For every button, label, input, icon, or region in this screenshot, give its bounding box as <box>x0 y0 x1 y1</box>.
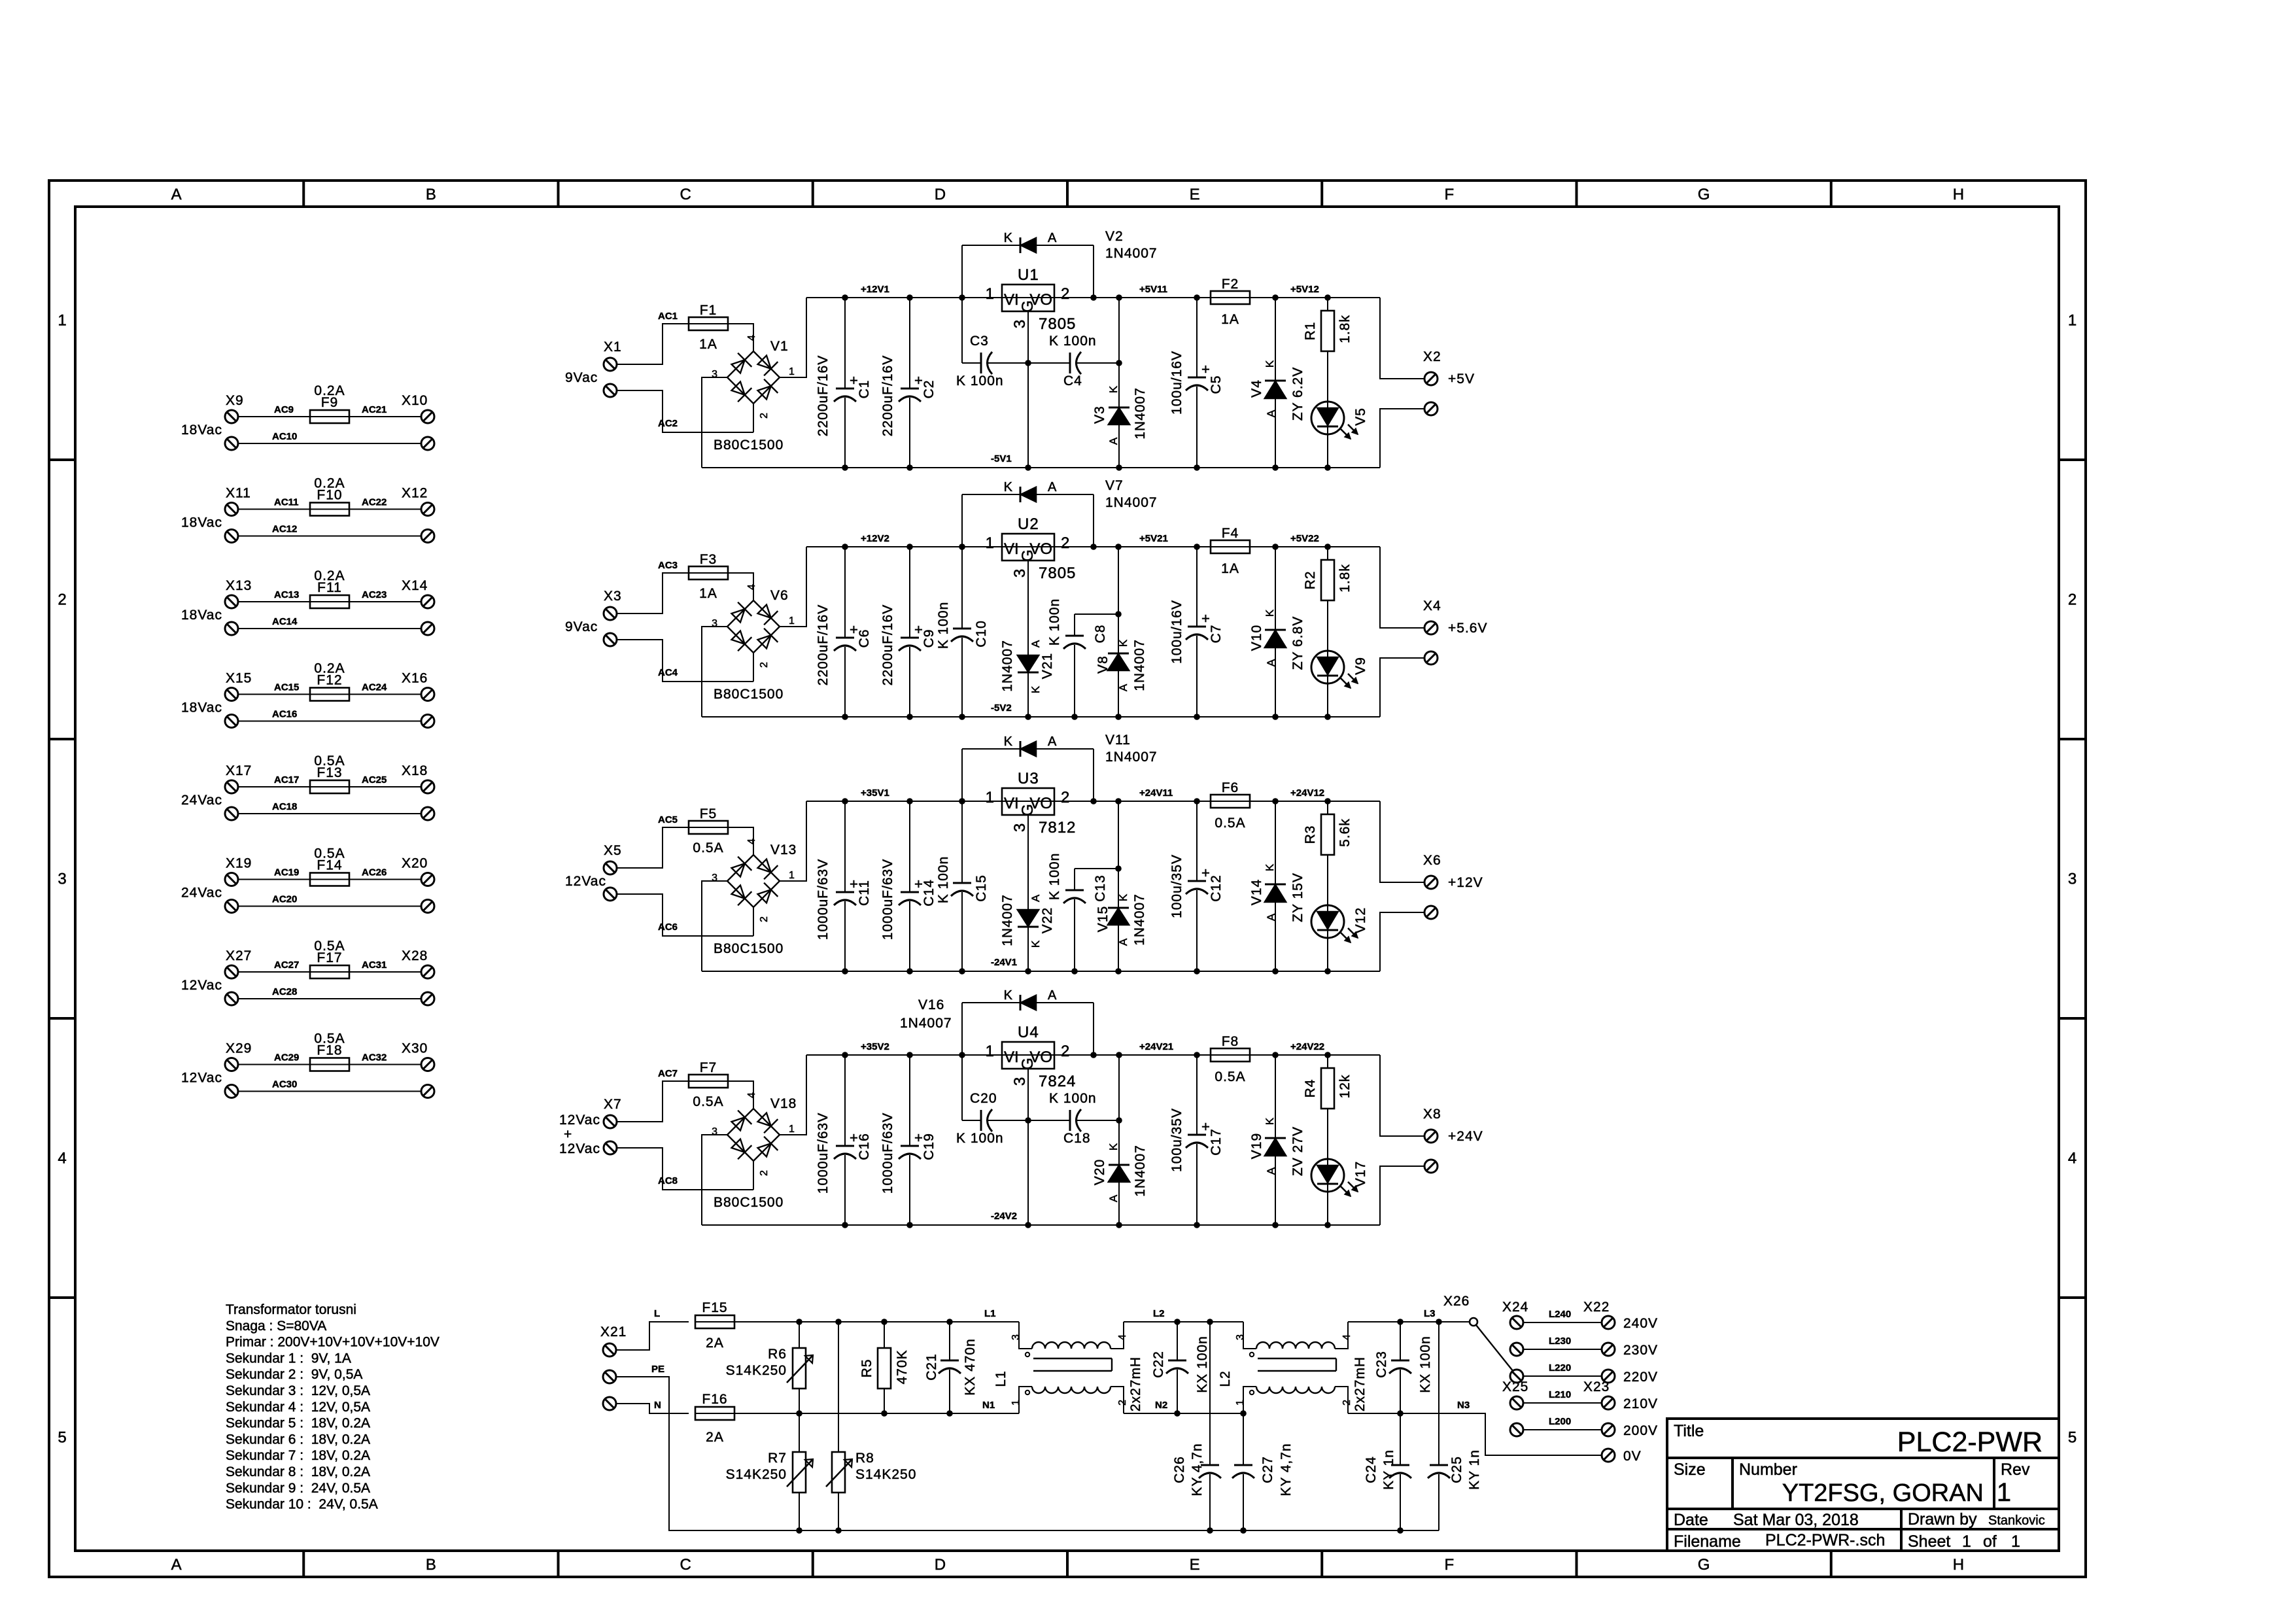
svg-text:+5.6V: +5.6V <box>1448 621 1487 636</box>
svg-text:1: 1 <box>1235 1399 1246 1406</box>
svg-text:U1: U1 <box>1018 266 1039 284</box>
svg-text:1: 1 <box>1997 1478 2011 1507</box>
svg-text:1N4007: 1N4007 <box>1133 1145 1148 1197</box>
svg-text:200V: 200V <box>1623 1423 1658 1438</box>
svg-text:1N4007: 1N4007 <box>1133 387 1148 440</box>
svg-text:AC18: AC18 <box>272 801 297 812</box>
svg-text:K: K <box>1004 734 1013 749</box>
svg-text:1000uF/63V: 1000uF/63V <box>816 859 831 940</box>
svg-text:1N4007: 1N4007 <box>900 1016 952 1031</box>
svg-text:1.8k: 1.8k <box>1337 315 1353 343</box>
svg-text:AC9: AC9 <box>274 404 294 415</box>
svg-text:G: G <box>1019 803 1037 816</box>
svg-text:24Vac: 24Vac <box>181 793 222 808</box>
svg-text:100u/35V: 100u/35V <box>1169 854 1184 918</box>
svg-text:+5V11: +5V11 <box>1139 284 1167 295</box>
svg-text:1: 1 <box>789 615 795 627</box>
svg-text:Rev: Rev <box>2001 1460 2030 1479</box>
svg-text:N1: N1 <box>982 1400 995 1411</box>
svg-text:3: 3 <box>1011 319 1029 328</box>
svg-text:V13: V13 <box>770 842 797 857</box>
svg-text:V8: V8 <box>1095 655 1111 674</box>
svg-text:3: 3 <box>712 1126 717 1137</box>
svg-text:B80C1500: B80C1500 <box>714 941 784 956</box>
svg-text:R6: R6 <box>768 1347 787 1362</box>
svg-text:A: A <box>1117 683 1129 691</box>
svg-text:L230: L230 <box>1549 1336 1571 1347</box>
svg-text:210V: 210V <box>1623 1396 1658 1411</box>
svg-text:L1: L1 <box>984 1308 996 1319</box>
svg-text:1: 1 <box>986 789 994 806</box>
svg-text:+24V11: +24V11 <box>1139 787 1173 799</box>
svg-text:V18: V18 <box>770 1096 797 1111</box>
svg-text:3: 3 <box>1010 1334 1022 1340</box>
svg-text:1000uF/63V: 1000uF/63V <box>880 859 895 940</box>
svg-text:V4: V4 <box>1249 379 1264 398</box>
svg-text:3: 3 <box>1011 823 1029 832</box>
svg-text:C23: C23 <box>1374 1351 1389 1378</box>
svg-text:F15: F15 <box>702 1300 727 1315</box>
svg-text:2: 2 <box>1117 1399 1128 1406</box>
svg-text:Sekundar 10 : 24V, 0.5A: Sekundar 10 : 24V, 0.5A <box>226 1497 378 1512</box>
svg-text:C17: C17 <box>1209 1128 1224 1156</box>
svg-text:AC22: AC22 <box>362 497 387 508</box>
svg-text:3: 3 <box>58 871 66 888</box>
svg-text:C4: C4 <box>1063 373 1082 389</box>
svg-text:F8: F8 <box>1222 1034 1239 1049</box>
svg-text:220V: 220V <box>1623 1370 1658 1385</box>
svg-text:F17: F17 <box>317 950 342 965</box>
svg-text:470K: 470K <box>895 1349 910 1384</box>
svg-text:2: 2 <box>759 1169 770 1176</box>
svg-text:VI: VI <box>1004 1048 1019 1066</box>
svg-text:N2: N2 <box>1155 1400 1167 1411</box>
svg-text:C26: C26 <box>1172 1456 1187 1483</box>
svg-text:V9: V9 <box>1353 657 1368 675</box>
svg-text:X18: X18 <box>402 763 428 778</box>
svg-text:X26: X26 <box>1443 1294 1470 1309</box>
svg-text:Number: Number <box>1739 1460 1797 1479</box>
svg-text:C20: C20 <box>970 1091 997 1106</box>
svg-text:X21: X21 <box>600 1324 627 1339</box>
svg-text:X29: X29 <box>226 1041 252 1056</box>
svg-text:V16: V16 <box>918 997 944 1012</box>
svg-text:C18: C18 <box>1063 1131 1091 1146</box>
svg-text:F16: F16 <box>702 1392 727 1407</box>
svg-text:18Vac: 18Vac <box>181 515 222 530</box>
svg-text:AC6: AC6 <box>658 922 678 933</box>
svg-text:X17: X17 <box>226 763 252 778</box>
svg-text:C24: C24 <box>1364 1456 1379 1483</box>
svg-text:C6: C6 <box>857 629 872 648</box>
svg-text:A: A <box>1107 437 1120 445</box>
svg-text:U2: U2 <box>1018 515 1039 533</box>
svg-text:R5: R5 <box>859 1359 874 1378</box>
svg-text:2: 2 <box>759 916 770 922</box>
svg-text:R4: R4 <box>1303 1079 1318 1098</box>
svg-text:R7: R7 <box>768 1451 787 1466</box>
svg-text:G: G <box>1019 1057 1037 1070</box>
svg-text:F: F <box>1445 1556 1455 1574</box>
svg-text:1A: 1A <box>1221 312 1239 327</box>
svg-text:C11: C11 <box>857 880 872 906</box>
svg-text:F5: F5 <box>700 806 717 821</box>
svg-text:A: A <box>1265 913 1277 921</box>
svg-text:+24V22: +24V22 <box>1290 1041 1324 1052</box>
svg-text:240V: 240V <box>1623 1316 1658 1331</box>
svg-text:K 100n: K 100n <box>1047 598 1062 646</box>
svg-text:-24V2: -24V2 <box>991 1211 1017 1222</box>
svg-text:PE: PE <box>651 1364 664 1375</box>
svg-text:X19: X19 <box>226 856 252 871</box>
svg-text:C16: C16 <box>857 1133 872 1160</box>
svg-text:L240: L240 <box>1549 1309 1571 1320</box>
svg-text:V15: V15 <box>1095 906 1111 932</box>
svg-text:100u/16V: 100u/16V <box>1169 351 1184 415</box>
svg-text:A: A <box>171 186 182 203</box>
svg-text:A: A <box>1265 659 1277 666</box>
svg-text:+: + <box>1201 610 1210 627</box>
svg-text:V22: V22 <box>1040 907 1055 933</box>
svg-text:G: G <box>1019 549 1037 562</box>
svg-text:F9: F9 <box>321 395 339 410</box>
svg-text:230V: 230V <box>1623 1343 1658 1358</box>
svg-text:A: A <box>1048 734 1057 749</box>
svg-text:-5V2: -5V2 <box>991 702 1012 714</box>
svg-text:12Vac: 12Vac <box>565 874 606 889</box>
svg-text:AC7: AC7 <box>658 1068 678 1079</box>
svg-text:B80C1500: B80C1500 <box>714 687 784 702</box>
svg-text:1: 1 <box>789 1124 795 1135</box>
svg-text:12Vac: 12Vac <box>181 978 222 993</box>
svg-text:1: 1 <box>789 870 795 881</box>
svg-text:Date: Date <box>1674 1511 1708 1529</box>
svg-text:V20: V20 <box>1092 1159 1107 1185</box>
svg-text:X20: X20 <box>402 856 428 871</box>
svg-text:5: 5 <box>58 1429 66 1447</box>
svg-text:V11: V11 <box>1105 733 1131 748</box>
svg-text:+5V12: +5V12 <box>1290 284 1319 295</box>
svg-text:1N4007: 1N4007 <box>1105 750 1158 765</box>
svg-text:K 100n: K 100n <box>1047 853 1062 901</box>
svg-text:7824: 7824 <box>1039 1073 1076 1090</box>
svg-text:A: A <box>171 1556 182 1574</box>
svg-text:K 100n: K 100n <box>1049 334 1097 349</box>
svg-text:1.8k: 1.8k <box>1337 564 1353 593</box>
svg-text:Sekundar 2 : 9V, 0,5A: Sekundar 2 : 9V, 0,5A <box>226 1367 362 1382</box>
svg-text:X7: X7 <box>604 1097 622 1112</box>
svg-text:3: 3 <box>1235 1334 1246 1340</box>
svg-text:C22: C22 <box>1151 1351 1166 1378</box>
svg-text:K 100n: K 100n <box>956 1131 1004 1146</box>
svg-text:3: 3 <box>712 618 717 629</box>
svg-text:AC16: AC16 <box>272 709 297 720</box>
svg-text:F14: F14 <box>317 858 342 873</box>
svg-text:4: 4 <box>1341 1334 1353 1340</box>
svg-text:4: 4 <box>2068 1150 2077 1167</box>
svg-text:3: 3 <box>712 369 717 380</box>
svg-text:AC8: AC8 <box>658 1175 678 1186</box>
svg-text:K: K <box>1107 1143 1120 1150</box>
svg-text:C19: C19 <box>922 1133 937 1160</box>
svg-text:C15: C15 <box>974 874 989 902</box>
svg-text:0.5A: 0.5A <box>693 840 723 855</box>
svg-text:S14K250: S14K250 <box>855 1467 916 1482</box>
svg-text:S14K250: S14K250 <box>726 1467 787 1482</box>
svg-text:YT2FSG, GORAN: YT2FSG, GORAN <box>1782 1479 1984 1507</box>
svg-text:X30: X30 <box>402 1041 428 1056</box>
svg-text:+24V12: +24V12 <box>1290 787 1324 799</box>
svg-text:K: K <box>1264 863 1276 871</box>
svg-text:18Vac: 18Vac <box>181 700 222 716</box>
svg-text:C: C <box>680 186 691 203</box>
svg-text:Sat Mar 03, 2018: Sat Mar 03, 2018 <box>1733 1511 1859 1529</box>
svg-text:+5V: +5V <box>1448 371 1475 387</box>
svg-text:X3: X3 <box>604 589 622 604</box>
svg-text:C12: C12 <box>1209 874 1224 902</box>
svg-text:KY 4,7n: KY 4,7n <box>1190 1443 1205 1496</box>
svg-text:V19: V19 <box>1249 1133 1264 1159</box>
svg-text:A: A <box>1029 894 1042 902</box>
svg-text:2A: 2A <box>706 1336 724 1351</box>
svg-text:+5V21: +5V21 <box>1139 533 1168 544</box>
svg-text:1: 1 <box>789 366 795 377</box>
svg-text:Filename: Filename <box>1674 1532 1741 1551</box>
svg-text:+24V: +24V <box>1448 1129 1483 1144</box>
svg-text:V21: V21 <box>1040 653 1055 679</box>
svg-text:AC11: AC11 <box>274 497 299 508</box>
svg-text:Sekundar 6 : 18V, 0.2A: Sekundar 6 : 18V, 0.2A <box>226 1432 370 1447</box>
svg-text:B: B <box>426 186 436 203</box>
svg-text:12Vac: 12Vac <box>181 1071 222 1086</box>
svg-text:Sekundar 4 : 12V, 0,5A: Sekundar 4 : 12V, 0,5A <box>226 1400 370 1415</box>
svg-text:3: 3 <box>1011 1077 1029 1086</box>
svg-text:V17: V17 <box>1353 1161 1368 1187</box>
svg-text:V14: V14 <box>1249 879 1264 905</box>
svg-text:1N4007: 1N4007 <box>1105 495 1158 510</box>
svg-text:2: 2 <box>2068 591 2077 609</box>
svg-text:1: 1 <box>2011 1532 2020 1551</box>
svg-text:C21: C21 <box>924 1353 939 1381</box>
svg-text:1: 1 <box>986 285 994 303</box>
svg-text:F13: F13 <box>317 765 342 780</box>
svg-text:AC4: AC4 <box>658 667 678 678</box>
svg-text:AC31: AC31 <box>362 959 387 971</box>
svg-text:S14K250: S14K250 <box>726 1363 787 1378</box>
svg-text:C7: C7 <box>1209 625 1224 644</box>
svg-text:C3: C3 <box>970 334 989 349</box>
svg-text:L200: L200 <box>1549 1416 1571 1427</box>
svg-text:K 100n: K 100n <box>936 602 951 649</box>
svg-text:7812: 7812 <box>1039 819 1076 837</box>
svg-text:B: B <box>426 1556 436 1574</box>
svg-text:L220: L220 <box>1549 1362 1571 1373</box>
svg-text:A: A <box>1265 409 1277 417</box>
svg-text:7805: 7805 <box>1039 315 1076 333</box>
svg-text:of: of <box>1983 1532 1997 1551</box>
svg-text:PLC2-PWR: PLC2-PWR <box>1897 1426 2043 1458</box>
svg-text:2x27mH: 2x27mH <box>1128 1356 1143 1411</box>
svg-text:1000uF/63V: 1000uF/63V <box>816 1113 831 1194</box>
svg-text:V3: V3 <box>1092 406 1107 424</box>
svg-text:ZY 15V: ZY 15V <box>1290 872 1305 922</box>
svg-text:Sekundar 1 : 9V, 1A: Sekundar 1 : 9V, 1A <box>226 1351 351 1366</box>
svg-text:12k: 12k <box>1337 1075 1353 1099</box>
svg-text:1: 1 <box>986 1043 994 1060</box>
svg-text:KY 1n: KY 1n <box>1467 1449 1482 1490</box>
svg-text:+: + <box>1201 361 1210 377</box>
svg-text:C8: C8 <box>1093 625 1108 644</box>
svg-text:G: G <box>1698 1556 1710 1574</box>
svg-text:2: 2 <box>1341 1399 1353 1406</box>
svg-text:U4: U4 <box>1018 1024 1039 1041</box>
svg-text:Sheet: Sheet <box>1908 1532 1950 1551</box>
svg-text:K: K <box>1029 940 1042 948</box>
svg-text:1A: 1A <box>699 337 717 352</box>
svg-text:X28: X28 <box>402 948 428 963</box>
svg-text:F7: F7 <box>700 1060 717 1075</box>
svg-text:24Vac: 24Vac <box>181 886 222 901</box>
svg-text:Drawn by: Drawn by <box>1908 1510 1977 1529</box>
svg-text:AC5: AC5 <box>658 814 678 825</box>
svg-text:1: 1 <box>1962 1532 1971 1551</box>
svg-text:2: 2 <box>58 591 66 609</box>
svg-text:1: 1 <box>2068 312 2077 330</box>
svg-text:AC29: AC29 <box>274 1052 299 1063</box>
svg-text:5: 5 <box>2068 1429 2077 1447</box>
svg-text:KX 100n: KX 100n <box>1418 1336 1433 1393</box>
svg-text:X1: X1 <box>604 339 622 354</box>
svg-text:X10: X10 <box>402 393 428 408</box>
svg-text:AC32: AC32 <box>362 1052 387 1063</box>
svg-text:K: K <box>1117 639 1129 647</box>
svg-text:C1: C1 <box>857 380 872 399</box>
svg-text:AC23: AC23 <box>362 589 387 600</box>
svg-text:N3: N3 <box>1457 1400 1470 1411</box>
svg-text:K: K <box>1264 1117 1276 1125</box>
svg-text:V5: V5 <box>1353 407 1368 426</box>
svg-text:X25: X25 <box>1502 1379 1528 1394</box>
svg-text:4: 4 <box>58 1150 66 1167</box>
svg-text:C5: C5 <box>1209 375 1224 394</box>
svg-text:2200uF/16V: 2200uF/16V <box>816 355 831 436</box>
svg-text:ZY 6.8V: ZY 6.8V <box>1290 616 1305 670</box>
svg-text:1000uF/63V: 1000uF/63V <box>880 1113 895 1194</box>
svg-text:C: C <box>680 1556 691 1574</box>
svg-text:5.6k: 5.6k <box>1337 818 1353 847</box>
svg-text:X14: X14 <box>402 578 428 593</box>
svg-text:100u/16V: 100u/16V <box>1169 600 1184 664</box>
svg-text:Snaga : S=80VA: Snaga : S=80VA <box>226 1319 326 1334</box>
svg-text:2x27mH: 2x27mH <box>1353 1356 1368 1411</box>
svg-text:4: 4 <box>746 583 757 590</box>
svg-text:-5V1: -5V1 <box>991 453 1012 464</box>
svg-text:C14: C14 <box>922 879 937 907</box>
svg-text:R1: R1 <box>1303 322 1318 341</box>
svg-text:1N4007: 1N4007 <box>1105 246 1158 261</box>
svg-text:9Vac: 9Vac <box>565 619 598 634</box>
svg-text:Primar : 200V+10V+10V+10V+10V: Primar : 200V+10V+10V+10V+10V <box>226 1335 440 1350</box>
svg-text:L1: L1 <box>993 1370 1009 1387</box>
svg-text:+12V: +12V <box>1448 875 1483 890</box>
svg-text:AC26: AC26 <box>362 867 387 878</box>
svg-text:KX 100n: KX 100n <box>1195 1336 1210 1393</box>
svg-text:AC3: AC3 <box>658 560 678 571</box>
svg-text:X15: X15 <box>226 671 252 686</box>
svg-text:Size: Size <box>1674 1460 1706 1479</box>
svg-text:D: D <box>935 1556 946 1574</box>
svg-text:3: 3 <box>2068 871 2077 888</box>
svg-text:Transformator torusni: Transformator torusni <box>226 1302 356 1317</box>
svg-text:AC2: AC2 <box>658 418 678 429</box>
svg-text:V2: V2 <box>1105 229 1124 244</box>
svg-text:F10: F10 <box>317 488 342 503</box>
svg-text:0.5A: 0.5A <box>1215 816 1245 831</box>
svg-text:18Vac: 18Vac <box>181 423 222 438</box>
svg-text:Sekundar 3 : 12V, 0,5A: Sekundar 3 : 12V, 0,5A <box>226 1383 370 1398</box>
svg-text:C13: C13 <box>1093 874 1108 902</box>
svg-text:4: 4 <box>746 1092 757 1098</box>
svg-text:AC15: AC15 <box>274 682 299 693</box>
svg-text:0V: 0V <box>1623 1449 1642 1464</box>
svg-text:K 100n: K 100n <box>956 373 1004 389</box>
svg-text:A: A <box>1029 640 1042 648</box>
svg-text:7805: 7805 <box>1039 564 1076 582</box>
svg-text:1A: 1A <box>699 586 717 601</box>
svg-text:AC28: AC28 <box>272 986 297 997</box>
svg-text:Sekundar 8 : 18V, 0.2A: Sekundar 8 : 18V, 0.2A <box>226 1464 370 1479</box>
svg-text:N: N <box>654 1400 661 1411</box>
svg-text:1N4007: 1N4007 <box>1132 893 1147 946</box>
svg-text:X24: X24 <box>1502 1300 1528 1315</box>
svg-text:Sekundar 7 : 18V, 0.2A: Sekundar 7 : 18V, 0.2A <box>226 1448 370 1463</box>
svg-text:1N4007: 1N4007 <box>1000 640 1015 692</box>
svg-text:X22: X22 <box>1583 1300 1610 1315</box>
svg-text:AC10: AC10 <box>272 431 297 442</box>
svg-text:X8: X8 <box>1423 1107 1441 1122</box>
svg-text:AC30: AC30 <box>272 1079 297 1090</box>
svg-text:3: 3 <box>712 872 717 884</box>
svg-text:2200uF/16V: 2200uF/16V <box>816 604 831 685</box>
svg-text:K: K <box>1264 609 1276 617</box>
svg-text:+12V1: +12V1 <box>861 284 889 295</box>
svg-text:Sekundar 5 : 18V, 0.2A: Sekundar 5 : 18V, 0.2A <box>226 1416 370 1431</box>
svg-text:E: E <box>1190 1556 1200 1574</box>
svg-text:B80C1500: B80C1500 <box>714 438 784 453</box>
svg-text:2200uF/16V: 2200uF/16V <box>880 604 895 685</box>
svg-text:L3: L3 <box>1424 1308 1436 1319</box>
svg-text:X11: X11 <box>226 486 251 501</box>
svg-text:X2: X2 <box>1423 349 1441 364</box>
svg-text:K: K <box>1264 360 1276 368</box>
svg-text:ZY 6.2V: ZY 6.2V <box>1290 367 1305 421</box>
svg-text:V10: V10 <box>1249 625 1264 651</box>
svg-text:2A: 2A <box>706 1430 724 1445</box>
svg-text:12Vac: 12Vac <box>559 1113 600 1128</box>
svg-text:H: H <box>1953 186 1964 203</box>
svg-text:F11: F11 <box>317 580 342 595</box>
svg-text:X23: X23 <box>1583 1379 1610 1394</box>
svg-text:VI: VI <box>1004 291 1019 309</box>
svg-text:2: 2 <box>1061 285 1069 303</box>
svg-text:C2: C2 <box>922 380 937 399</box>
svg-text:X16: X16 <box>402 671 428 686</box>
svg-text:F3: F3 <box>700 552 717 567</box>
svg-text:18Vac: 18Vac <box>181 608 222 623</box>
svg-text:E: E <box>1190 186 1200 203</box>
svg-text:A: A <box>1107 1194 1120 1202</box>
svg-text:K: K <box>1004 988 1013 1003</box>
